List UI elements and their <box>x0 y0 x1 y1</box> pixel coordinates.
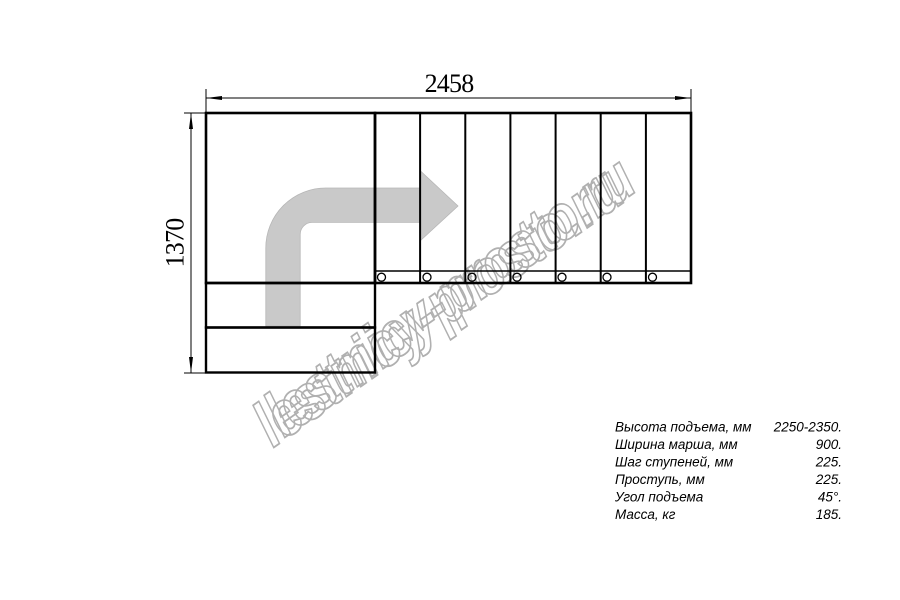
svg-text:lestnicy-prosto.ru: lestnicy-prosto.ru <box>251 142 648 450</box>
svg-text:Угол подъема: Угол подъема <box>614 490 704 505</box>
svg-text:Шаг ступеней, мм: Шаг ступеней, мм <box>615 455 733 470</box>
svg-text:Высота подъема, мм: Высота подъема, мм <box>615 420 751 435</box>
svg-text:Ширина марша, мм: Ширина марша, мм <box>615 437 738 452</box>
svg-text:1370: 1370 <box>161 218 190 268</box>
svg-text:2250-2350.: 2250-2350. <box>773 420 842 435</box>
svg-text:Масса, кг: Масса, кг <box>615 507 676 522</box>
svg-text:185.: 185. <box>816 507 842 522</box>
svg-text:225.: 225. <box>815 472 842 487</box>
svg-text:Проступь, мм: Проступь, мм <box>615 472 705 487</box>
svg-text:2458: 2458 <box>425 69 475 98</box>
svg-text:225.: 225. <box>815 455 842 470</box>
svg-text:900.: 900. <box>816 437 842 452</box>
svg-text:45°.: 45°. <box>818 490 842 505</box>
